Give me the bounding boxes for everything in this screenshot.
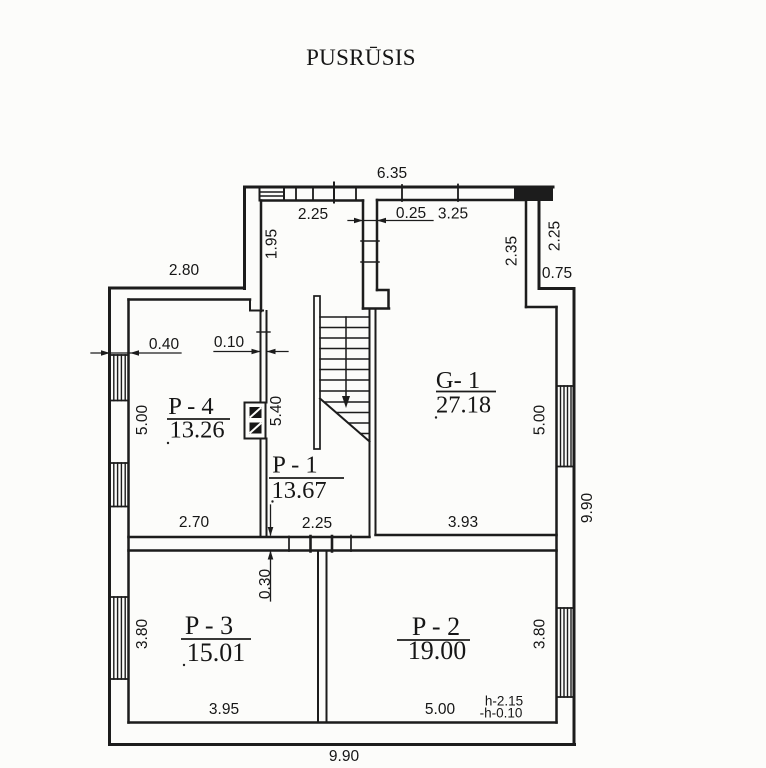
svg-text:P - 3: P - 3 [185, 611, 233, 640]
svg-text:0.75: 0.75 [542, 265, 572, 282]
svg-text:0.25: 0.25 [396, 205, 426, 222]
svg-text:3.93: 3.93 [448, 514, 478, 531]
svg-text:2.80: 2.80 [169, 262, 200, 279]
svg-text:13.67: 13.67 [271, 477, 326, 504]
svg-text:9.90: 9.90 [329, 748, 360, 765]
svg-text:3.80: 3.80 [134, 619, 151, 650]
svg-text:5.00: 5.00 [134, 405, 151, 436]
svg-text:P - 1: P - 1 [272, 452, 317, 479]
svg-text:27.18: 27.18 [436, 392, 491, 419]
svg-text:1.95: 1.95 [264, 229, 281, 259]
svg-text:9.90: 9.90 [579, 493, 596, 524]
svg-text:6.35: 6.35 [377, 165, 407, 182]
svg-text:15.01: 15.01 [187, 638, 246, 667]
svg-text:3.95: 3.95 [209, 701, 239, 718]
svg-text:0.30: 0.30 [257, 569, 274, 600]
svg-text:-h-0.10: -h-0.10 [480, 706, 523, 721]
svg-text:2.25: 2.25 [302, 515, 332, 532]
svg-text:5.00: 5.00 [532, 405, 549, 436]
svg-text:5.40: 5.40 [268, 396, 285, 427]
svg-text:2.25: 2.25 [298, 206, 328, 223]
svg-text:3.25: 3.25 [438, 206, 468, 223]
svg-text:0.40: 0.40 [149, 336, 180, 353]
svg-text:13.26: 13.26 [169, 417, 224, 444]
svg-text:5.00: 5.00 [425, 701, 456, 718]
svg-text:2.25: 2.25 [547, 221, 564, 251]
svg-text:2.70: 2.70 [179, 514, 210, 531]
svg-text:19.00: 19.00 [408, 636, 467, 665]
svg-text:2.35: 2.35 [504, 236, 521, 266]
svg-text:0.10: 0.10 [214, 334, 245, 351]
svg-text:3.80: 3.80 [532, 619, 549, 650]
svg-text:G- 1: G- 1 [436, 367, 480, 394]
svg-text:PUSRŪSIS: PUSRŪSIS [306, 45, 416, 70]
